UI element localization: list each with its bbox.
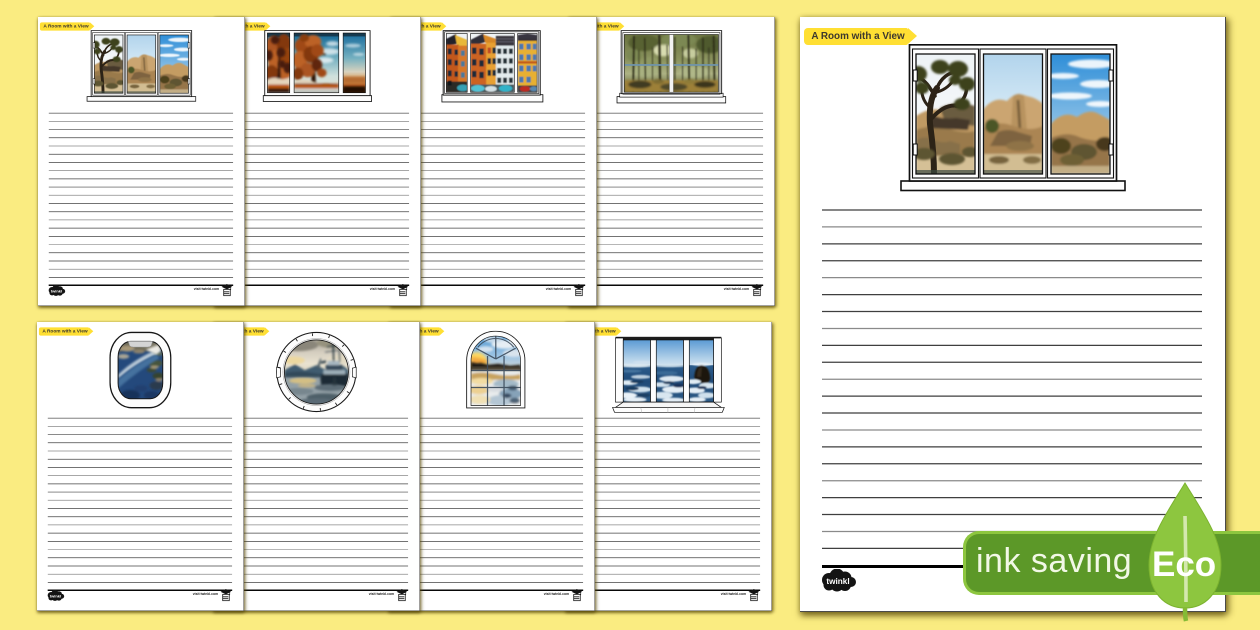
- svg-text:twinkl: twinkl: [50, 593, 61, 598]
- svg-text:twinkl: twinkl: [827, 577, 850, 586]
- svg-text:twinkl: twinkl: [51, 288, 62, 293]
